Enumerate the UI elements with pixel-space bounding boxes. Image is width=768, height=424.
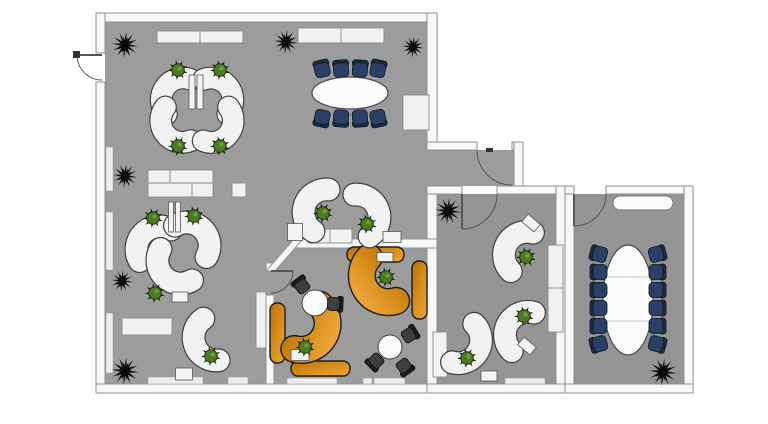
cabinet-block (148, 170, 213, 197)
chair-navy (332, 59, 349, 77)
floor-corridor (427, 150, 514, 186)
plant-highlight (178, 67, 182, 71)
sill-bottom-2 (228, 377, 248, 384)
desk-base (176, 368, 193, 380)
cabinet-orange-wall (256, 292, 266, 348)
plant-foliage (205, 350, 218, 363)
plant-foliage (518, 310, 531, 323)
chair-navy (351, 59, 368, 77)
sill-left-1 (106, 147, 113, 191)
chair-seat (333, 62, 349, 77)
chair-seat (649, 319, 663, 334)
floor-plan-canvas (0, 0, 768, 424)
chair-navy (649, 318, 666, 334)
desk-link (189, 75, 195, 109)
plant-highlight (155, 290, 159, 294)
wall-farright-top (606, 186, 693, 194)
chair-navy (649, 282, 666, 298)
chair-seat (649, 301, 663, 316)
plant-highlight (524, 313, 528, 317)
meeting-table (603, 245, 653, 355)
wall-farright-left (565, 186, 574, 393)
wall-left-lower (96, 82, 105, 393)
chair-seat (313, 62, 331, 79)
desk-link (197, 75, 203, 109)
round-table-2 (378, 335, 402, 359)
chair-seat (593, 319, 607, 334)
desk-base (288, 224, 303, 241)
door-hinge (486, 148, 493, 152)
chair-navy (590, 318, 607, 334)
cabinet-body (232, 183, 246, 197)
sill-bottom-4 (363, 378, 372, 384)
chair-seat (313, 109, 331, 126)
cabinet-right-wall (403, 95, 429, 130)
plant-highlight (220, 143, 224, 147)
plant-highlight (386, 274, 390, 278)
round-table-1 (302, 290, 328, 316)
floor-plan (0, 0, 768, 424)
plant-highlight (526, 254, 530, 258)
plant-foliage (172, 64, 185, 77)
wall-top (96, 13, 437, 22)
sideboard-capsule (613, 196, 673, 210)
chair-navy (590, 264, 607, 280)
plant-foliage (299, 341, 312, 354)
desk-base (172, 292, 188, 302)
plant-highlight (194, 213, 198, 217)
wall-bottom-main (96, 384, 437, 393)
chair-seat (369, 109, 387, 126)
cabinet-top-2 (298, 28, 384, 43)
cabinet-body (548, 245, 563, 332)
plant-highlight (305, 344, 309, 348)
meeting-table-top (603, 245, 653, 355)
plant-foliage (380, 271, 393, 284)
door-hinge (73, 51, 80, 58)
wall-farright-top-stub (565, 186, 574, 194)
sill-bottom-3 (287, 378, 337, 384)
chair-seat (593, 301, 607, 316)
sideboard-orange-right (412, 261, 427, 319)
wall-left-upper (96, 13, 105, 53)
chair-seat (333, 109, 349, 124)
wall-farright-right (684, 186, 693, 393)
wall-midright-top-left (427, 186, 462, 194)
cabinet-body (148, 170, 213, 197)
chair-seat (352, 62, 368, 77)
plant-foliage (172, 140, 185, 153)
conference-table (312, 77, 388, 109)
plant-foliage (317, 207, 330, 220)
plant-foliage (520, 251, 533, 264)
chair-navy (590, 282, 607, 298)
plant-foliage (214, 140, 227, 153)
plant-foliage (361, 218, 374, 231)
chair-seat (369, 62, 387, 79)
desk-base (383, 232, 401, 243)
chair-navy (649, 264, 666, 280)
desk-base (377, 253, 393, 262)
cabinet-left-mid (122, 318, 172, 335)
plant-highlight (367, 221, 371, 225)
cabinet-square (232, 183, 246, 197)
desk-link (176, 202, 181, 232)
plant-highlight (467, 355, 471, 359)
chair-seat (649, 283, 663, 298)
desk-base (481, 371, 497, 381)
plant-highlight (220, 67, 224, 71)
wall-midright-bottom (427, 384, 565, 393)
chair-navy (590, 300, 607, 316)
sill-left-2 (106, 212, 113, 270)
chair-navy (351, 109, 368, 127)
sill-bottom-5 (374, 378, 405, 384)
chair-navy (649, 300, 666, 316)
wall-farright-bottom (565, 384, 693, 393)
plant-foliage (149, 287, 162, 300)
plant-foliage (461, 352, 474, 365)
plant-highlight (323, 210, 327, 214)
desk-link (169, 202, 174, 232)
cabinet-body (256, 292, 266, 348)
chair-seat (352, 109, 368, 124)
plant-highlight (211, 353, 215, 357)
cabinet-office-right (548, 245, 563, 332)
sill-left-3 (106, 313, 113, 373)
chair-seat (593, 283, 607, 298)
chair-seat (327, 297, 340, 311)
cabinet-body (403, 95, 429, 130)
chair-navy (332, 109, 349, 127)
plant-foliage (214, 64, 227, 77)
chair-seat (649, 265, 663, 280)
sill-bottom-6 (505, 378, 545, 384)
chair-task-black (327, 296, 343, 313)
plant-highlight (178, 143, 182, 147)
chair-seat (593, 265, 607, 280)
plant-foliage (147, 212, 160, 225)
plant-highlight (153, 215, 157, 219)
cabinet-top-1 (157, 31, 243, 43)
cabinet-body (122, 318, 172, 335)
wall-corridor-top-left (427, 142, 477, 150)
plant-foliage (188, 210, 201, 223)
